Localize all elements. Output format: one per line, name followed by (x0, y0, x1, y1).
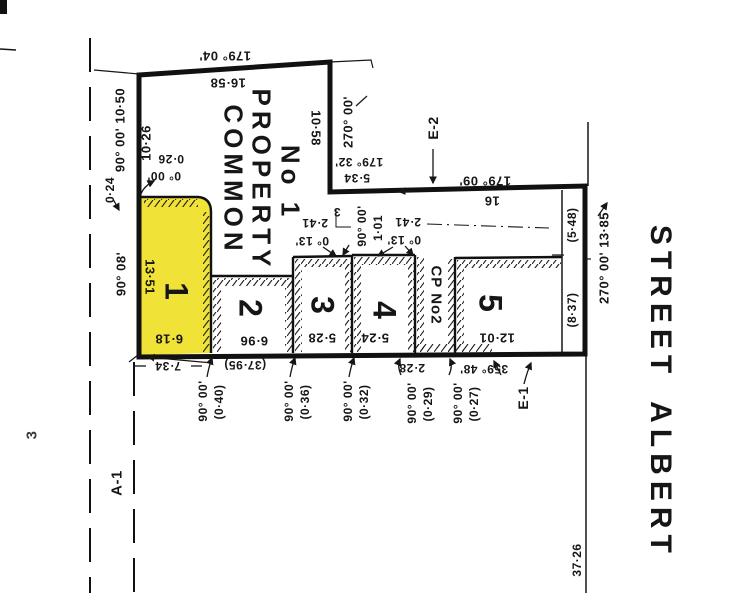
common-property-word3: No 1 (275, 145, 306, 221)
lot1-depth: 13·51 (143, 259, 158, 295)
dim-offset-bearing: 0° 00' (147, 169, 181, 183)
dim-jog-west-distance: 2·41 (302, 216, 328, 230)
dim-street-bearing: 270° 00' 13·85 (597, 212, 612, 304)
easement-e1-label: E-1 (515, 386, 531, 409)
dim-step-bearing: 90° 00' (355, 205, 369, 246)
dim-jog-west-bearing: 0° 13' (295, 234, 329, 248)
south-jog2-offset: (0·36) (298, 384, 312, 419)
south-jog2-bearing: 90° 00' (282, 380, 296, 421)
dim-north-distance: 16·58 (210, 76, 246, 91)
dim-mid-west-bearing: 179° 32' (335, 155, 383, 169)
dim-jog-east-bearing: 0° 13' (387, 233, 421, 247)
lot2-width: 6·96 (240, 334, 268, 349)
south-jog3-offset: (0·32) (357, 384, 371, 419)
dim-south-bearing: 359° 48' (460, 362, 508, 376)
lot4-width: 5·24 (361, 331, 389, 346)
lot5-width: 12·01 (479, 331, 515, 346)
dim-street-seg-north: (5·48) (565, 207, 579, 242)
lot1-number: 1 (158, 282, 195, 300)
dim-step-distance: 1·01 (371, 215, 385, 241)
easement-e2-label: E-2 (425, 116, 441, 139)
common-property-word1: COMMON (218, 104, 249, 255)
dim-east-upper-distance: 10·58 (309, 110, 324, 146)
lot2-number: 2 (232, 299, 269, 317)
survey-plan: 179° 04' 16·58 90° 00' 10·50 10·26 0·24 … (0, 0, 753, 593)
dim-step-small: 3 (333, 205, 340, 219)
cp2-label: CP No2 (428, 265, 445, 324)
south-jog5-bearing: 90° 00' (451, 382, 465, 423)
south-jog5-offset: (0·27) (467, 386, 481, 421)
south-jog1-offset: (0·40) (212, 384, 226, 419)
lot1-width: 6·18 (155, 332, 183, 347)
lot4-number: 4 (366, 301, 403, 319)
dim-south-left: 7·34 (155, 359, 181, 373)
dim-west-upper: 90° 00' 10·50 (113, 88, 128, 172)
left-margin-mark: 3 (24, 431, 41, 440)
street-name-word: STREET (643, 225, 677, 379)
dim-west-lot1-bearing: 90° 08' (114, 252, 129, 296)
easement-a1-label: A-1 (109, 470, 126, 496)
lot5-number: 5 (472, 294, 509, 312)
dim-lot5-frontage: (8·37) (565, 292, 579, 327)
south-jog3-bearing: 90° 00' (341, 380, 355, 421)
dim-street-south-frontage: 37·26 (570, 543, 584, 576)
dim-south-overall: (37·95) (224, 358, 266, 372)
common-property-word2: PROPERTY (246, 88, 277, 271)
dim-offset-b: 0·26 (158, 152, 184, 166)
dim-east-upper-bearing: 270° 00' (341, 96, 356, 148)
dim-mid-west-distance: 5·34 (344, 171, 370, 185)
street-name-albert: ALBERT (643, 401, 677, 559)
cp2-width: 2·28 (399, 361, 425, 375)
dim-offset-a: 0·24 (103, 177, 117, 203)
lot3-width: 5·28 (308, 331, 336, 346)
dim-mid-east-distance: 16 (484, 194, 499, 209)
dim-mid-east-bearing: 179° 09' (459, 174, 511, 189)
scan-artifact (0, 0, 7, 14)
dim-west-inner: 10·26 (139, 125, 154, 161)
south-jog4-offset: (0·29) (421, 386, 435, 421)
lot3-number: 3 (304, 296, 341, 314)
dim-jog-east-distance: 2·41 (395, 215, 421, 229)
dim-north-bearing: 179° 04' (199, 49, 251, 64)
south-jog4-bearing: 90° 00' (405, 382, 419, 423)
south-jog1-bearing: 90° 00' (196, 380, 210, 421)
